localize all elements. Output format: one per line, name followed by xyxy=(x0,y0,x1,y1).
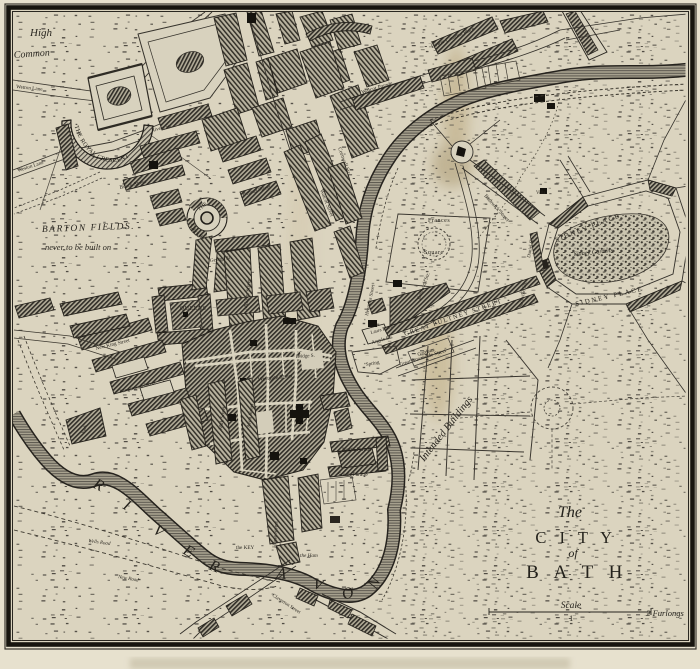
svg-text:B A T H: B A T H xyxy=(526,562,628,583)
svg-text:never to be built on: never to be built on xyxy=(45,242,111,252)
svg-text:the KEY: the KEY xyxy=(236,545,255,551)
svg-text:A: A xyxy=(275,565,288,583)
svg-text:QUEENS: QUEENS xyxy=(180,306,206,312)
svg-text:Frances: Frances xyxy=(428,218,450,224)
svg-text:1: 1 xyxy=(569,613,573,623)
svg-text:Square: Square xyxy=(424,250,444,256)
svg-text:North Parade: North Parade xyxy=(342,447,372,453)
svg-text:The: The xyxy=(558,504,582,521)
svg-text:the Ham: the Ham xyxy=(300,553,318,559)
svg-text:South Parade: South Parade xyxy=(338,472,368,478)
svg-text:Scale: Scale xyxy=(561,601,582,611)
svg-text:Villa: Villa xyxy=(536,191,546,196)
svg-text:2 Furlongs: 2 Furlongs xyxy=(646,608,684,618)
svg-text:C I T Y: C I T Y xyxy=(535,528,616,547)
svg-text:High: High xyxy=(29,27,53,39)
